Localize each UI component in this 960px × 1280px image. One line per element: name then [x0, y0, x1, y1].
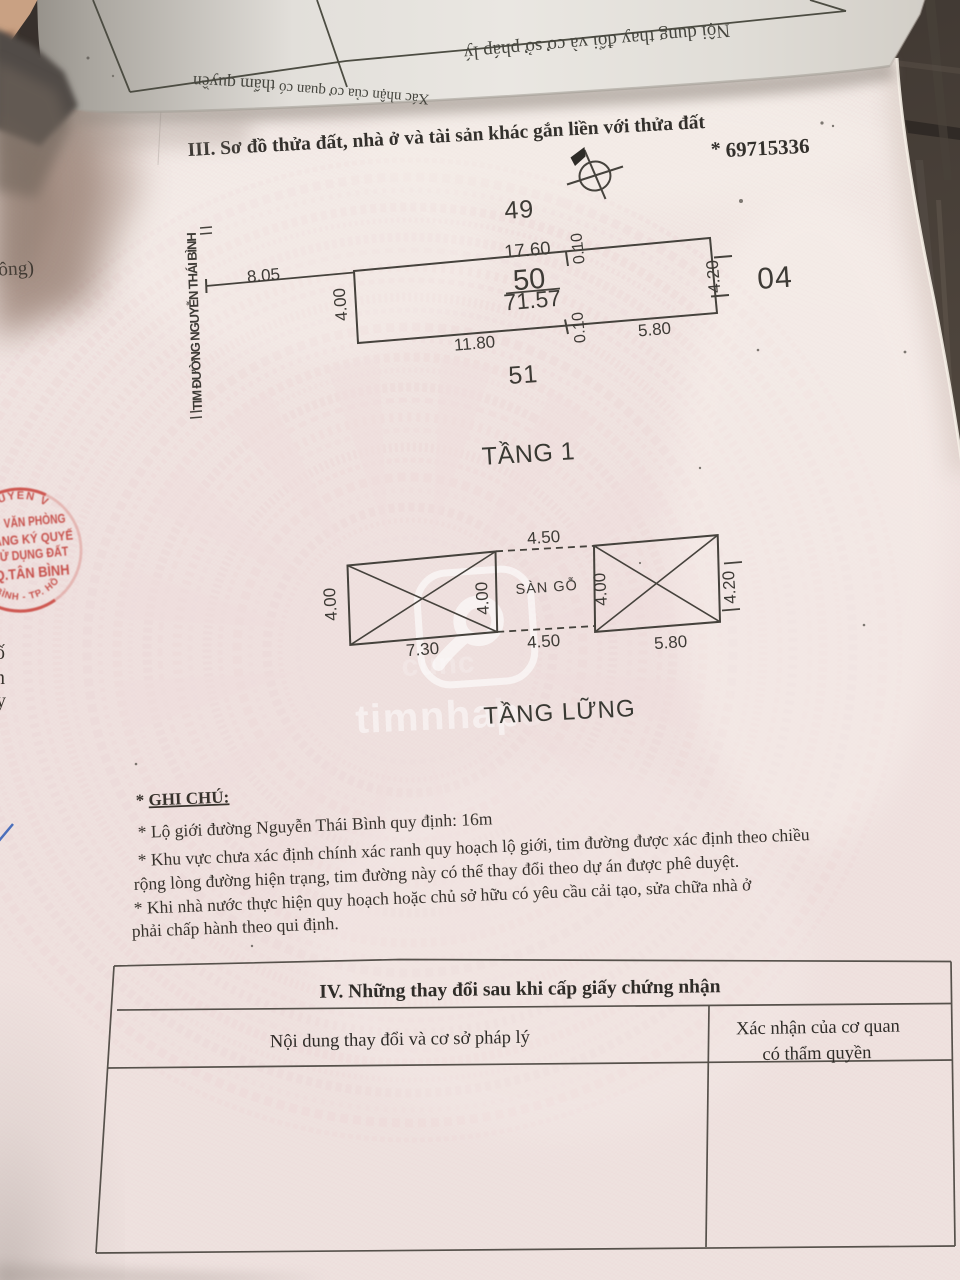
svg-text:49: 49: [503, 195, 535, 225]
svg-text:5.80: 5.80: [637, 319, 672, 341]
svg-text:4.50: 4.50: [526, 631, 560, 652]
svg-text:có thẩm quyền: có thẩm quyền: [762, 1043, 871, 1065]
svg-text:4.50: 4.50: [526, 527, 560, 548]
svg-text:0.10: 0.10: [568, 232, 588, 265]
svg-text:4.00: 4.00: [330, 287, 352, 322]
svg-text:* GHI CHÚ:: * GHI CHÚ:: [135, 787, 229, 810]
svg-text:4.00: 4.00: [320, 587, 341, 621]
svg-text:Xác nhận của cơ quan: Xác nhận của cơ quan: [736, 1017, 900, 1040]
svg-text:04: 04: [756, 261, 794, 296]
svg-text:4.20: 4.20: [719, 570, 740, 604]
svg-text:4.00: 4.00: [472, 581, 493, 615]
svg-text:8.05: 8.05: [246, 265, 281, 287]
svg-text:ố: ố: [0, 642, 5, 664]
svg-text:4.20: 4.20: [703, 259, 725, 294]
svg-text:0.10: 0.10: [569, 311, 589, 344]
svg-text:69715336: 69715336: [725, 134, 810, 162]
svg-text:11.80: 11.80: [453, 332, 496, 355]
svg-text:n: n: [0, 667, 5, 689]
svg-text:51: 51: [507, 360, 539, 390]
svg-text:71.57: 71.57: [502, 285, 562, 316]
svg-text:7.30: 7.30: [405, 639, 439, 661]
svg-text:TẦNG 1: TẦNG 1: [481, 436, 576, 471]
svg-text:y: y: [0, 690, 6, 712]
svg-text:4.00: 4.00: [590, 572, 611, 606]
svg-text:17.60: 17.60: [503, 237, 551, 262]
svg-text:5.80: 5.80: [653, 632, 687, 653]
